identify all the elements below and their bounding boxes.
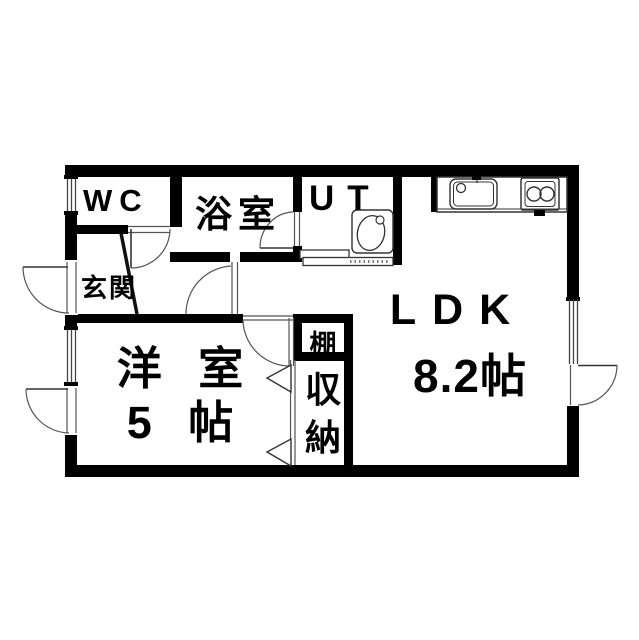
western-room-label: 洋 室 5 帖 <box>76 342 296 450</box>
closet-label-char-1: 収 <box>302 366 344 414</box>
bath-room-label: 浴室 <box>195 184 281 238</box>
wc-door <box>128 227 170 269</box>
ldk-room-label: LDK <box>368 286 548 335</box>
hallway-door <box>186 262 238 314</box>
floor-plan: WC 浴室 UT 玄関 洋 室 5 帖 LDK 8.2帖 棚 収 納 <box>0 0 639 640</box>
shelf-label: 棚 <box>301 323 345 362</box>
closet-label: 収 納 <box>302 366 344 462</box>
ldk-room-size: 8.2帖 <box>380 340 560 406</box>
western-room-name: 洋 室 <box>76 342 296 396</box>
closet-label-char-2: 納 <box>302 414 344 462</box>
western-room-size: 5 帖 <box>76 396 296 450</box>
utility-room-label: UT <box>309 179 382 219</box>
entrance-label: 玄関 <box>81 268 137 305</box>
wc-room-label: WC <box>83 183 149 219</box>
